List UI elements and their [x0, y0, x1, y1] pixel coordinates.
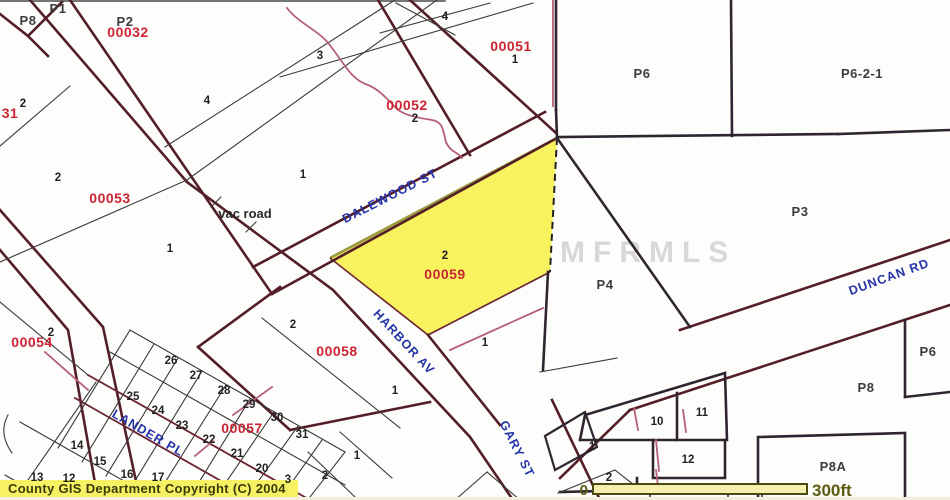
- lot-number-label-2: 2: [606, 472, 612, 484]
- plat-label-p4: P4: [597, 277, 614, 292]
- lot-number-label-12: 12: [63, 473, 76, 485]
- lot-number-label-16: 16: [121, 469, 134, 481]
- lot-number-label-vac-road: vac road: [218, 206, 272, 221]
- parcel-group-label-00053: 00053: [89, 190, 130, 206]
- lot-number-label-29: 29: [243, 399, 256, 411]
- lot-number-label-13: 13: [31, 472, 44, 484]
- lot-number-label-20: 20: [256, 463, 269, 475]
- plat-label-p8a: P8A: [820, 459, 847, 474]
- lot-number-label-25: 25: [127, 391, 140, 403]
- lot-number-label-30: 30: [271, 412, 284, 424]
- lot-number-label-2: 2: [442, 250, 448, 262]
- lot-number-label-2: 2: [55, 172, 61, 184]
- lot-number-label-3: 3: [317, 50, 323, 62]
- parcel-group-label-31: 31: [2, 105, 19, 121]
- plat-label-p3: P3: [792, 204, 809, 219]
- scale-start-label: 0: [580, 482, 588, 499]
- lot-number-label-2: 2: [290, 319, 296, 331]
- lot-number-label-2: 2: [20, 98, 26, 110]
- plat-label-p6-2-1: P6-2-1: [841, 66, 883, 81]
- lot-number-label-1: 1: [354, 450, 361, 462]
- lot-number-label-11: 11: [696, 407, 709, 419]
- creek-line: [287, 8, 462, 158]
- parcel-group-label-00057: 00057: [221, 420, 262, 436]
- parcel-group-label-00054: 00054: [11, 334, 52, 350]
- street-label-gary-st: GARY ST: [497, 418, 538, 479]
- lot-number-label-1: 1: [512, 54, 519, 66]
- street-label-duncan-rd: DUNCAN RD: [847, 256, 931, 298]
- lot-number-label-4: 4: [442, 11, 449, 23]
- lot-number-label-22: 22: [203, 434, 216, 446]
- lot-number-label-2: 2: [48, 327, 54, 339]
- parcel-group-label-00051: 00051: [490, 38, 531, 54]
- lot-number-label-27: 27: [190, 370, 203, 382]
- highlighted-parcel-00059[interactable]: [330, 138, 557, 335]
- lot-number-label-23: 23: [176, 420, 189, 432]
- plat-label-p6: P6: [634, 66, 651, 81]
- lot-number-label-21: 21: [231, 448, 244, 460]
- lot-number-label-12: 12: [682, 454, 695, 466]
- plat-label-p2: P2: [117, 14, 134, 29]
- plat-label-p8: P8: [858, 380, 875, 395]
- lot-number-label-2: 2: [412, 113, 418, 125]
- lot-number-label-17: 17: [152, 472, 165, 484]
- gis-map-viewport: MFRMLS: [0, 0, 950, 500]
- lot-number-label-28: 28: [218, 385, 231, 397]
- lot-number-label-1: 1: [300, 169, 307, 181]
- lot-number-label-2: 2: [322, 470, 328, 482]
- mls-watermark: MFRMLS: [560, 236, 736, 269]
- lot-number-label-1: 1: [482, 337, 489, 349]
- plat-label-p1: P1: [50, 1, 67, 16]
- lot-number-label-10: 10: [651, 416, 664, 428]
- parcel-group-label-00058: 00058: [316, 343, 357, 359]
- plat-label-p8: P8: [20, 13, 37, 28]
- lot-number-label-15: 15: [94, 456, 107, 468]
- lot-number-label-24: 24: [152, 405, 165, 417]
- lot-number-label-14: 14: [71, 440, 84, 452]
- lot-number-label-1: 1: [167, 243, 174, 255]
- parcel-map-canvas[interactable]: MFRMLS: [0, 0, 950, 500]
- lot-number-label-26: 26: [165, 355, 178, 367]
- lot-number-label-4: 4: [204, 95, 211, 107]
- parcel-group-label-00059: 00059: [424, 266, 465, 282]
- lot-number-label-1: 1: [392, 385, 399, 397]
- lot-number-label-1: 1: [589, 441, 596, 453]
- lot-number-label-31: 31: [296, 429, 309, 441]
- copyright-text: County GIS Department Copyright (C) 2004: [8, 481, 286, 496]
- plat-label-p6: P6: [920, 344, 937, 359]
- parcel-group-label-00052: 00052: [386, 97, 427, 113]
- lot-number-label-3: 3: [285, 474, 291, 486]
